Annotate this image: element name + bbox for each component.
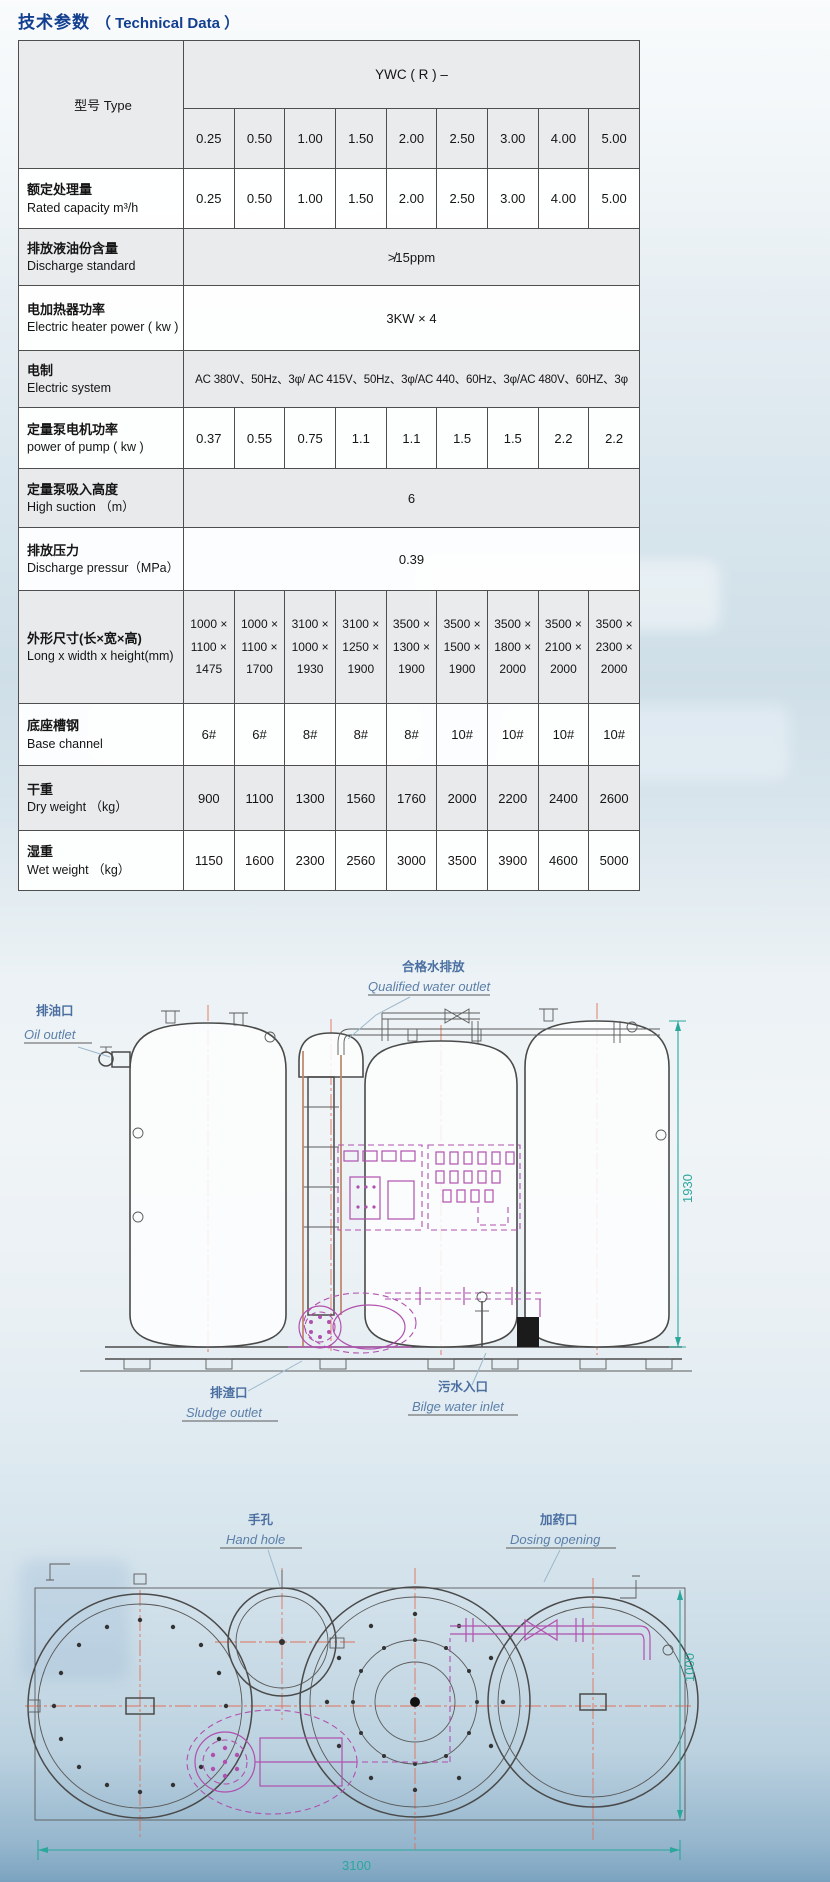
model-header-cell: 0.25 bbox=[184, 109, 235, 169]
row-label-zh: 底座槽钢 bbox=[27, 716, 179, 736]
title-en: （ Technical Data ） bbox=[96, 15, 239, 32]
row-label-zh: 额定处理量 bbox=[27, 180, 179, 200]
value-cell: 900 bbox=[184, 766, 235, 831]
row-label-en: Wet weight （kg） bbox=[27, 862, 179, 880]
oil-outlet-valve bbox=[99, 1047, 130, 1067]
value-cell: 4.00 bbox=[538, 169, 589, 229]
model-header-cell: 1.00 bbox=[285, 109, 336, 169]
model-header-cell: 2.00 bbox=[386, 109, 437, 169]
spec-row: 排放压力Discharge pressur（MPa）0.39 bbox=[19, 528, 640, 591]
value-cell: 3100 × 1000 × 1930 bbox=[285, 591, 336, 704]
value-cell: 3500 × 2300 × 2000 bbox=[589, 591, 640, 704]
value-cell: 0.50 bbox=[234, 169, 285, 229]
skid-outline bbox=[35, 1588, 685, 1820]
row-label-zh: 排放液油份含量 bbox=[27, 239, 179, 259]
spec-row: 定量泵吸入高度High suction （m）6 bbox=[19, 469, 640, 528]
value-cell: 3500 bbox=[437, 831, 488, 891]
row-label-cell: 排放液油份含量Discharge standard bbox=[19, 229, 184, 286]
value-cell: 10# bbox=[538, 704, 589, 766]
model-header-cell: 1.50 bbox=[335, 109, 386, 169]
row-label-zh: 外形尺寸(长×宽×高) bbox=[27, 629, 179, 649]
value-cell: 0.37 bbox=[184, 408, 235, 469]
row-label-zh: 干重 bbox=[27, 780, 179, 800]
sludge-outlet-label-zh: 排渣口 bbox=[210, 1385, 248, 1400]
type-header-cell: 型号 Type bbox=[19, 41, 184, 169]
model-header-cell: 0.50 bbox=[234, 109, 285, 169]
value-cell: 2.2 bbox=[538, 408, 589, 469]
bilge-water-inlet-label-zh: 污水入口 bbox=[438, 1379, 488, 1394]
row-label-cell: 定量泵吸入高度High suction （m） bbox=[19, 469, 184, 528]
row-label-cell: 定量泵电机功率power of pump ( kw ) bbox=[19, 408, 184, 469]
qualified-water-outlet-label-en: Qualified water outlet bbox=[368, 979, 492, 994]
value-cell: 3900 bbox=[487, 831, 538, 891]
value-cell: 3500 × 1500 × 1900 bbox=[437, 591, 488, 704]
right-tank bbox=[525, 1009, 669, 1347]
model-header-cell: 5.00 bbox=[589, 109, 640, 169]
row-label-en: Long x width x height(mm) bbox=[27, 648, 179, 666]
value-cell: 8# bbox=[386, 704, 437, 766]
value-cell: 6# bbox=[234, 704, 285, 766]
elevation-drawing: 合格水排放 Qualified water outlet 排油口 Oil out… bbox=[20, 955, 700, 1425]
row-label-en: Electric system bbox=[27, 380, 179, 398]
value-cell: 8# bbox=[285, 704, 336, 766]
row-label-cell: 电加热器功率Electric heater power ( kw ) bbox=[19, 286, 184, 351]
height-dimension: 1930 bbox=[669, 1021, 695, 1347]
value-cell: 1.1 bbox=[335, 408, 386, 469]
value-cell: 1.50 bbox=[335, 169, 386, 229]
spec-row: 干重Dry weight （kg）90011001300156017602000… bbox=[19, 766, 640, 831]
row-label-cell: 底座槽钢Base channel bbox=[19, 704, 184, 766]
catalog-page: 技术参数（ Technical Data ） 型号 TypeYWC ( R ) … bbox=[0, 0, 830, 1882]
callout-bilge-water-inlet: 污水入口 Bilge water inlet bbox=[408, 1353, 518, 1415]
model-header-cell: 4.00 bbox=[538, 109, 589, 169]
model-header-cell: 3.00 bbox=[487, 109, 538, 169]
row-label-en: Base channel bbox=[27, 736, 179, 754]
spec-row: 定量泵电机功率power of pump ( kw )0.370.550.751… bbox=[19, 408, 640, 469]
row-label-cell: 排放压力Discharge pressur（MPa） bbox=[19, 528, 184, 591]
row-label-en: Rated capacity m³/h bbox=[27, 200, 179, 218]
length-dimension-value: 3100 bbox=[342, 1858, 371, 1873]
value-cell: 0.25 bbox=[184, 169, 235, 229]
callout-sludge-outlet: 排渣口 Sludge outlet bbox=[182, 1361, 302, 1421]
value-cell: 3500 × 2100 × 2000 bbox=[538, 591, 589, 704]
row-label-en: Electric heater power ( kw ) bbox=[27, 319, 179, 337]
value-cell: 3.00 bbox=[487, 169, 538, 229]
left-tank bbox=[130, 1011, 286, 1347]
value-cell: 1760 bbox=[386, 766, 437, 831]
value-cell: 3100 × 1250 × 1900 bbox=[335, 591, 386, 704]
height-dimension-value: 1930 bbox=[680, 1174, 695, 1203]
value-cell: 2300 bbox=[285, 831, 336, 891]
width-dimension-value: 1000 bbox=[682, 1653, 697, 1682]
page-title: 技术参数（ Technical Data ） bbox=[18, 8, 239, 33]
value-cell: 3500 × 1800 × 2000 bbox=[487, 591, 538, 704]
spec-row: 电制Electric systemAC 380V、50Hz、3φ/ AC 415… bbox=[19, 351, 640, 408]
value-cell: 2600 bbox=[589, 766, 640, 831]
value-cell: 8# bbox=[335, 704, 386, 766]
value-cell: 10# bbox=[487, 704, 538, 766]
row-label-zh: 湿重 bbox=[27, 842, 179, 862]
bilge-water-inlet-label-en: Bilge water inlet bbox=[412, 1399, 505, 1414]
model-header-cell: 2.50 bbox=[437, 109, 488, 169]
callout-dosing-opening: 加药口 Dosing opening bbox=[506, 1512, 616, 1582]
series-header-cell: YWC ( R ) – bbox=[184, 41, 640, 109]
value-cell: 1.5 bbox=[437, 408, 488, 469]
row-label-zh: 排放压力 bbox=[27, 541, 179, 561]
row-label-en: High suction （m） bbox=[27, 499, 179, 517]
value-cell: 2200 bbox=[487, 766, 538, 831]
value-cell: 10# bbox=[589, 704, 640, 766]
value-cell: 5000 bbox=[589, 831, 640, 891]
value-cell: 1000 × 1100 × 1475 bbox=[184, 591, 235, 704]
row-label-zh: 定量泵电机功率 bbox=[27, 420, 179, 440]
value-cell: 1.5 bbox=[487, 408, 538, 469]
value-cell: 0.75 bbox=[285, 408, 336, 469]
value-cell: 1600 bbox=[234, 831, 285, 891]
row-label-en: Discharge pressur（MPa） bbox=[27, 560, 179, 578]
row-label-zh: 定量泵吸入高度 bbox=[27, 480, 179, 500]
value-cell: 10# bbox=[437, 704, 488, 766]
length-dimension: 3100 bbox=[38, 1840, 680, 1873]
merged-value-cell: 0.39 bbox=[184, 528, 640, 591]
spec-row: 额定处理量Rated capacity m³/h0.250.501.001.50… bbox=[19, 169, 640, 229]
oil-outlet-label-en: Oil outlet bbox=[24, 1027, 77, 1042]
dosing-opening-label-en: Dosing opening bbox=[510, 1532, 601, 1547]
value-cell: 1100 bbox=[234, 766, 285, 831]
value-cell: 1150 bbox=[184, 831, 235, 891]
row-label-en: Dry weight （kg） bbox=[27, 799, 179, 817]
hand-hole-label-zh: 手孔 bbox=[248, 1512, 274, 1527]
callout-oil-outlet: 排油口 Oil outlet bbox=[24, 1003, 110, 1057]
row-label-zh: 电加热器功率 bbox=[27, 300, 179, 320]
value-cell: 3000 bbox=[386, 831, 437, 891]
row-label-en: power of pump ( kw ) bbox=[27, 439, 179, 457]
row-label-cell: 额定处理量Rated capacity m³/h bbox=[19, 169, 184, 229]
value-cell: 1560 bbox=[335, 766, 386, 831]
value-cell: 3500 × 1300 × 1900 bbox=[386, 591, 437, 704]
row-label-zh: 电制 bbox=[27, 361, 179, 381]
merged-value-cell: AC 380V、50Hz、3φ/ AC 415V、50Hz、3φ/AC 440、… bbox=[184, 351, 640, 408]
qualified-water-outlet-label-zh: 合格水排放 bbox=[402, 959, 465, 974]
plan-drawing: 手孔 Hand hole 加药口 Dosing opening 3100 100… bbox=[20, 1510, 700, 1882]
value-cell: 2.00 bbox=[386, 169, 437, 229]
merged-value-cell: ≯15ppm bbox=[184, 229, 640, 286]
plan-dosing-pipe bbox=[450, 1618, 650, 1660]
spec-row: 底座槽钢Base channel6#6#8#8#8#10#10#10#10# bbox=[19, 704, 640, 766]
value-cell: 1.1 bbox=[386, 408, 437, 469]
value-cell: 0.55 bbox=[234, 408, 285, 469]
value-cell: 2000 bbox=[437, 766, 488, 831]
dosing-opening-label-zh: 加药口 bbox=[539, 1512, 578, 1527]
spec-row: 排放液油份含量Discharge standard≯15ppm bbox=[19, 229, 640, 286]
spec-row: 湿重Wet weight （kg）11501600230025603000350… bbox=[19, 831, 640, 891]
row-label-en: Discharge standard bbox=[27, 258, 179, 276]
row-label-cell: 干重Dry weight （kg） bbox=[19, 766, 184, 831]
value-cell: 2560 bbox=[335, 831, 386, 891]
width-dimension: 1000 bbox=[677, 1590, 697, 1820]
hand-hole-label-en: Hand hole bbox=[226, 1532, 285, 1547]
value-cell: 5.00 bbox=[589, 169, 640, 229]
row-label-cell: 外形尺寸(长×宽×高)Long x width x height(mm) bbox=[19, 591, 184, 704]
oil-outlet-label-zh: 排油口 bbox=[36, 1003, 74, 1018]
plan-dosing-pump bbox=[187, 1638, 450, 1814]
spec-row: 外形尺寸(长×宽×高)Long x width x height(mm)1000… bbox=[19, 591, 640, 704]
technical-data-table: 型号 TypeYWC ( R ) –0.250.501.001.502.002.… bbox=[18, 40, 640, 891]
value-cell: 2.2 bbox=[589, 408, 640, 469]
value-cell: 1300 bbox=[285, 766, 336, 831]
base-frame bbox=[80, 1347, 692, 1371]
merged-value-cell: 6 bbox=[184, 469, 640, 528]
merged-value-cell: 3KW × 4 bbox=[184, 286, 640, 351]
value-cell: 1.00 bbox=[285, 169, 336, 229]
value-cell: 2400 bbox=[538, 766, 589, 831]
sludge-outlet-label-en: Sludge outlet bbox=[186, 1405, 263, 1420]
value-cell: 6# bbox=[184, 704, 235, 766]
value-cell: 4600 bbox=[538, 831, 589, 891]
value-cell: 2.50 bbox=[437, 169, 488, 229]
value-cell: 1000 × 1100 × 1700 bbox=[234, 591, 285, 704]
row-label-cell: 湿重Wet weight （kg） bbox=[19, 831, 184, 891]
title-zh: 技术参数 bbox=[18, 13, 90, 32]
callout-qualified-water-outlet: 合格水排放 Qualified water outlet bbox=[348, 959, 492, 1039]
row-label-cell: 电制Electric system bbox=[19, 351, 184, 408]
spec-row: 电加热器功率Electric heater power ( kw )3KW × … bbox=[19, 286, 640, 351]
callout-hand-hole: 手孔 Hand hole bbox=[220, 1512, 302, 1586]
